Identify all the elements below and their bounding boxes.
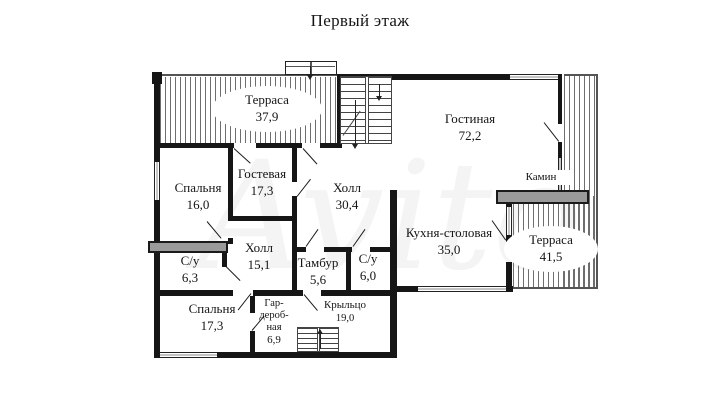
door-swing: [303, 148, 318, 164]
door-swing: [207, 221, 222, 238]
porch-arrow-stem: [320, 333, 321, 349]
room-label-vestibule: Тамбур 5,6: [290, 253, 346, 290]
door-swing: [297, 179, 311, 197]
terrace-right-bottom-edge: [513, 287, 598, 289]
bathroom1-wall-stub: [222, 253, 227, 267]
window-living-top: [510, 74, 560, 80]
room-name: Холл: [333, 180, 361, 197]
room-label-bedroom1: Спальня 16,0: [162, 177, 234, 217]
room-area: 6,0: [360, 268, 376, 285]
room-name: Гостевая: [238, 166, 286, 183]
door-swing: [234, 148, 251, 163]
room-name: С/у: [181, 253, 200, 270]
room-label-kitchen: Кухня-столовая 35,0: [388, 222, 510, 262]
room-area: 17,3: [201, 318, 224, 335]
main-staircase: [340, 76, 392, 144]
wall: [152, 72, 162, 84]
room-label-porch: Крыльцо 19,0: [314, 297, 376, 327]
room-area: 16,0: [187, 197, 210, 214]
room-name: Кухня-столовая: [406, 225, 492, 242]
room-label-hall-small: Холл 15,1: [228, 238, 290, 276]
fireplace-block: [496, 190, 589, 204]
room-name: Спальня: [175, 180, 222, 197]
room-name: Гостиная: [445, 111, 495, 128]
room-area: 6,9: [267, 334, 281, 347]
window-bedroom2: [160, 352, 217, 358]
floor-plan-page: Первый этаж Avito: [0, 0, 720, 404]
room-label-wardrobe: Гар- дероб- ная 6,9: [256, 294, 292, 350]
door-swing: [353, 229, 366, 247]
room-name: Крыльцо: [324, 299, 366, 313]
kitchen-bottom-wall-a: [390, 286, 418, 292]
room-area: 5,6: [310, 272, 326, 289]
room-label-bathroom1: С/у 6,3: [168, 252, 212, 288]
stair-arrow-down-icon: [352, 144, 358, 149]
stair-arrow-stem: [355, 100, 356, 146]
terrace-right-top-edge: [564, 74, 598, 76]
room-area: 30,4: [336, 197, 359, 214]
entry-arrow-down-icon: [307, 75, 313, 80]
room-name: Гар- дероб- ная: [259, 298, 288, 334]
porch-treads-left: [298, 328, 317, 351]
room-area: 17,3: [251, 183, 274, 200]
mid-wall-c: [321, 290, 397, 296]
porch-arrow-up-icon: [317, 329, 323, 334]
room-area: 72,2: [459, 128, 482, 145]
living-right-wall-b: [558, 142, 562, 158]
room-name: Камин: [526, 171, 557, 185]
room-area: 15,1: [248, 257, 271, 274]
room-area: 35,0: [438, 242, 461, 259]
room-label-bathroom2: С/у 6,0: [346, 250, 390, 286]
room-label-guest: Гостевая 17,3: [229, 163, 295, 203]
terrace-entry-steps: [285, 61, 337, 75]
stair-treads-right: [369, 77, 392, 143]
vestibule-top-wall-a: [292, 247, 306, 252]
room-label-living: Гостиная 72,2: [410, 107, 530, 149]
stair-arrow2-down-icon: [376, 96, 382, 101]
room-area: 37,9: [256, 109, 279, 126]
window-bedroom1: [154, 162, 160, 200]
room-name: Тамбур: [298, 255, 339, 272]
room-label-terrace-right: Терраса 41,5: [504, 226, 598, 272]
outer-wall-left: [154, 73, 160, 358]
living-right-wall-a: [558, 74, 562, 124]
room-area: 41,5: [540, 249, 563, 266]
door-swing: [544, 122, 560, 142]
bottom-wall: [217, 352, 397, 358]
room-label-bedroom2: Спальня 17,3: [172, 298, 252, 338]
terrace-right-edge: [596, 74, 598, 288]
room-name: Терраса: [245, 92, 289, 109]
room-area: 6,3: [182, 270, 198, 287]
door-swing: [306, 229, 319, 247]
room-label-terrace-top: Терраса 37,9: [212, 86, 322, 132]
window-kitchen: [418, 286, 508, 292]
floor-plan: Терраса 37,9 Гостиная 72,2 Камин Терраса…: [0, 0, 720, 404]
guest-bottom-wall: [228, 216, 297, 221]
kitchen-right-wall-c: [506, 262, 512, 288]
terrace-bottom-wall-a: [158, 143, 234, 148]
room-name: С/у: [359, 251, 378, 268]
room-label-fireplace: Камин: [508, 170, 574, 185]
east-inner-wall: [390, 190, 397, 358]
room-name: Холл: [245, 240, 273, 257]
room-label-hall-main: Холл 30,4: [315, 177, 379, 217]
room-area: 19,0: [336, 312, 354, 325]
mid-wall-a: [158, 290, 233, 296]
room-name: Терраса: [529, 232, 573, 249]
room-name: Спальня: [189, 301, 236, 318]
